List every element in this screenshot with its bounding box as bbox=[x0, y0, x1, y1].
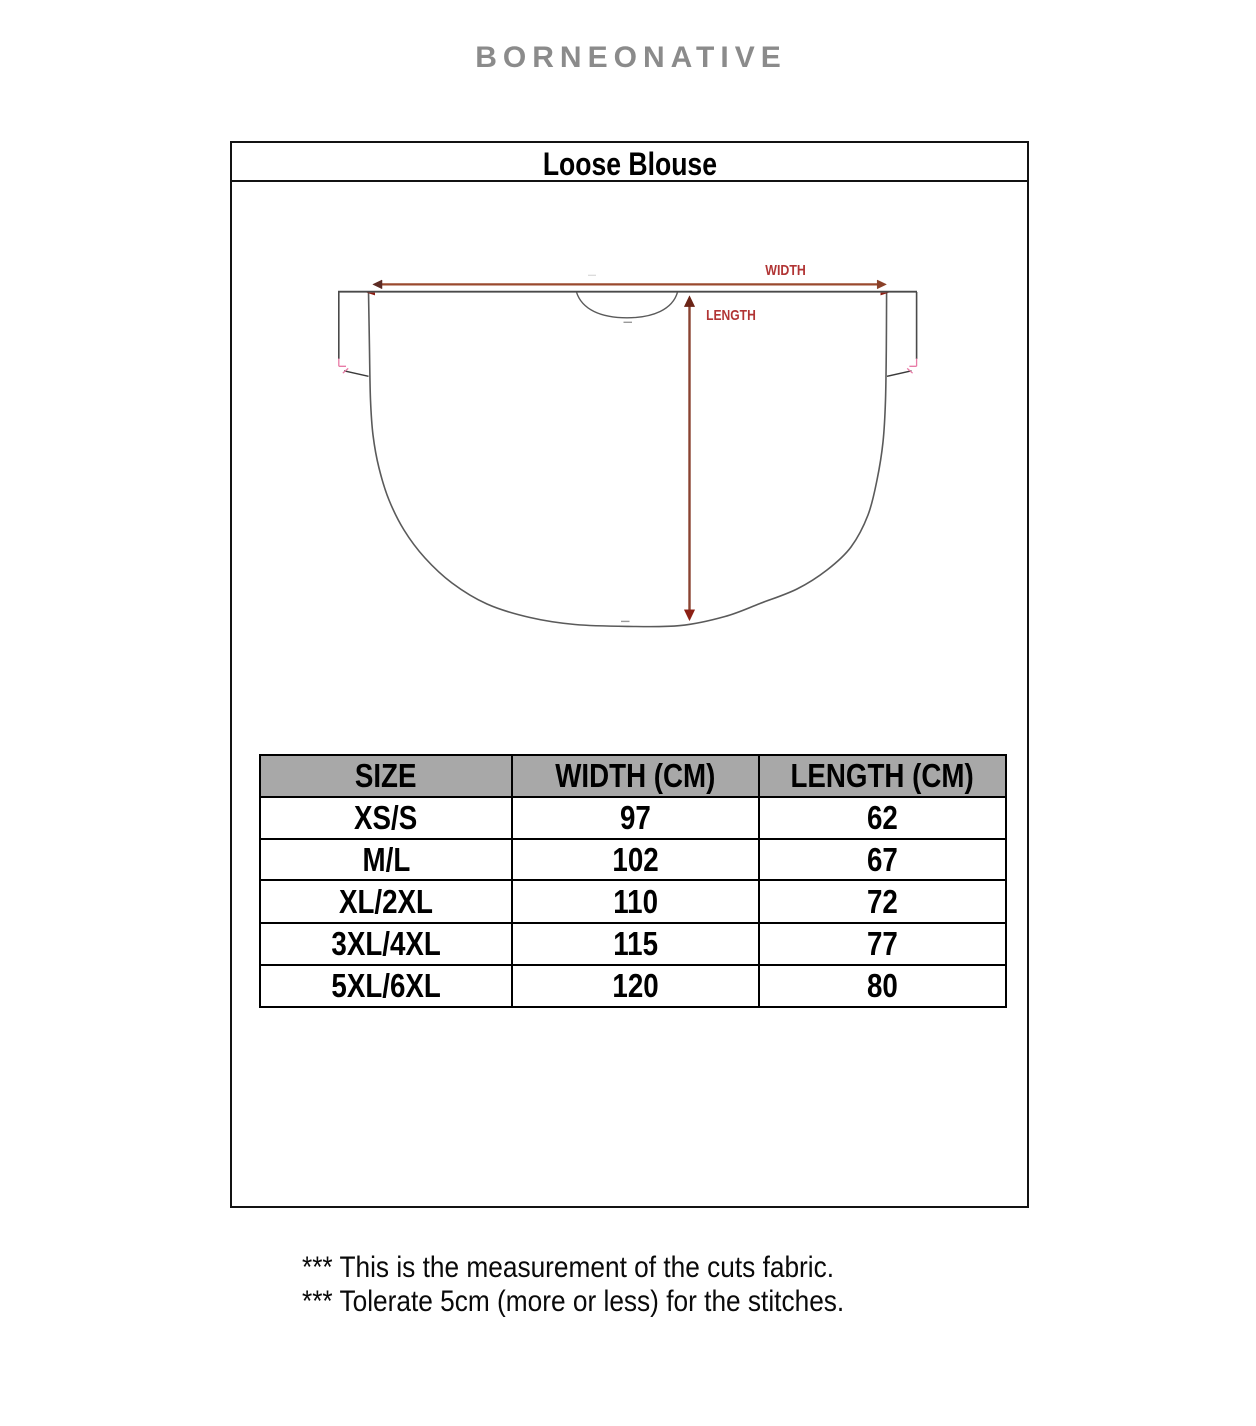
svg-text:LENGTH: LENGTH bbox=[706, 308, 756, 324]
svg-text:WIDTH: WIDTH bbox=[765, 263, 806, 279]
